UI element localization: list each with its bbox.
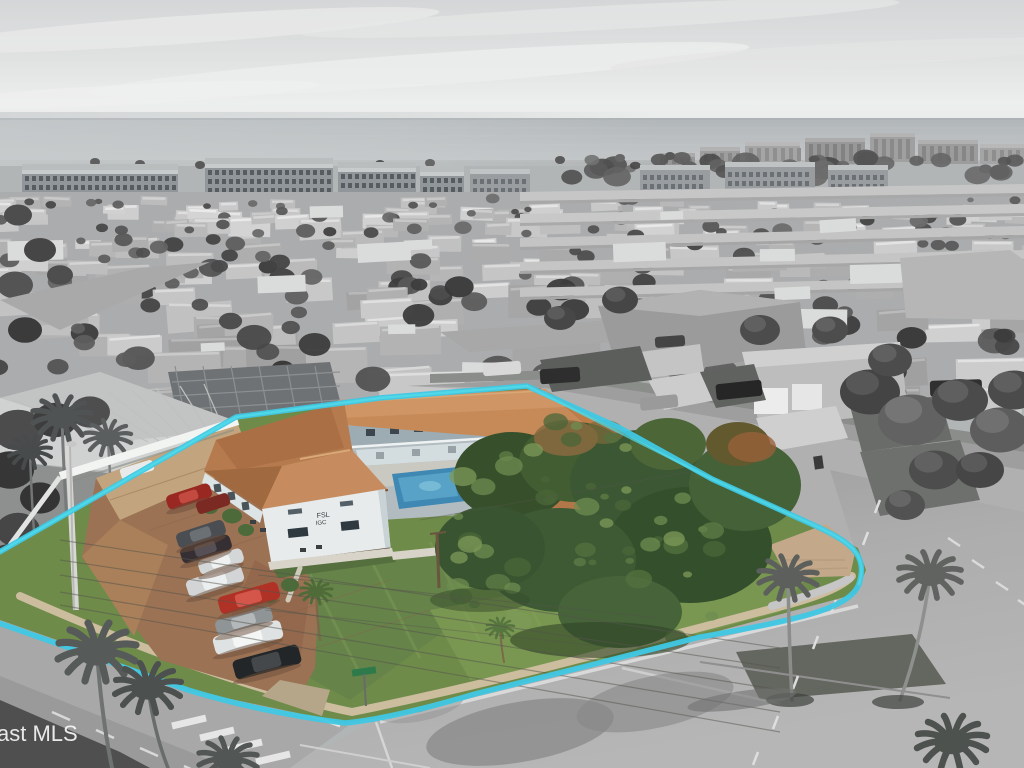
svg-text:FSL: FSL [316, 512, 330, 520]
svg-text:IGC: IGC [316, 520, 328, 527]
svg-text:ast MLS: ast MLS [0, 721, 78, 746]
